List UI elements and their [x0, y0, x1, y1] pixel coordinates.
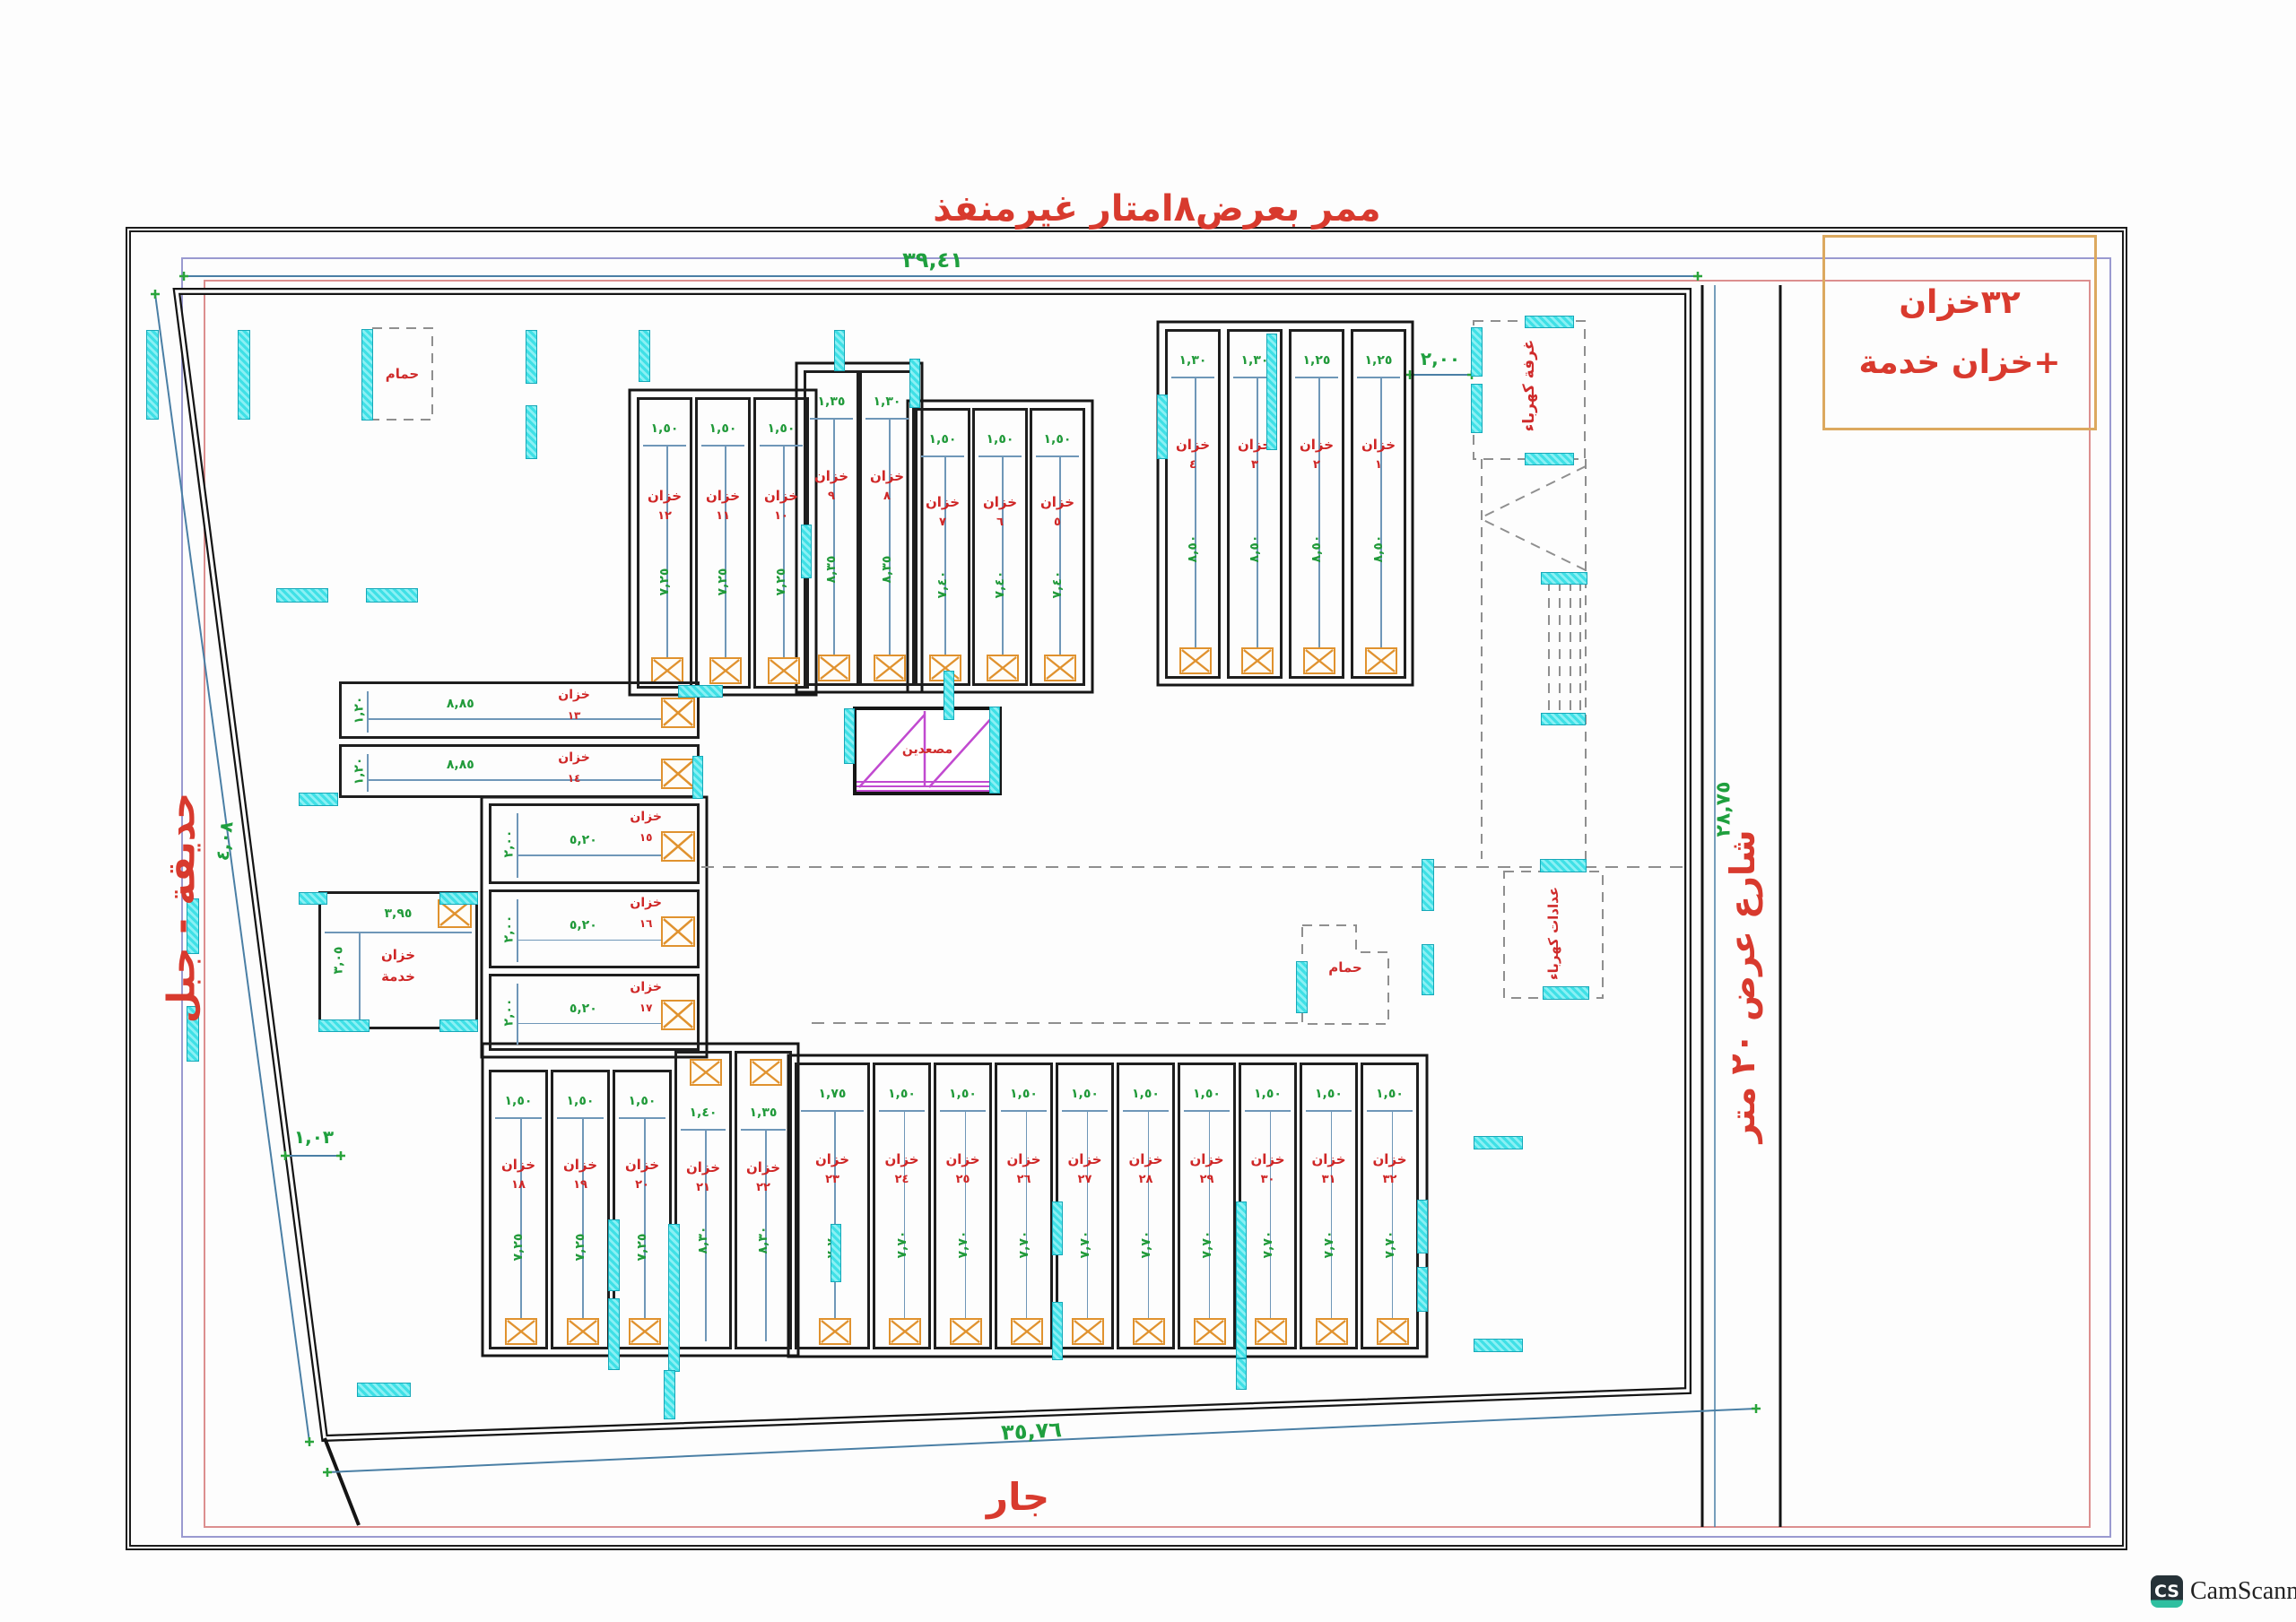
unit-width-dim: ١,٥٠ [1032, 432, 1083, 447]
unit-height-dim: ٧,٤٠ [993, 571, 1007, 599]
unit-width-dim: ٨,٨٥ [406, 697, 514, 711]
measure-line [1087, 1110, 1089, 1341]
measure-line [1209, 1110, 1211, 1341]
column [1525, 453, 1574, 465]
column [1236, 1358, 1247, 1390]
unit-21: ١,٤٠خزان٢١٨,٣٠ [674, 1051, 732, 1349]
unit-number: ١٢ [639, 509, 690, 523]
door-icon [1316, 1318, 1348, 1345]
column [1422, 859, 1434, 911]
unit-25: ١,٥٠خزان٢٥٧,٧٠ [934, 1063, 992, 1349]
unit-number: ١٩ [553, 1178, 607, 1192]
unit-26: ١,٥٠خزان٢٦٧,٧٠ [995, 1063, 1053, 1349]
unit-number: ١٠ [756, 509, 806, 523]
unit-1: ١,٢٥خزان١٨,٥٠ [1351, 329, 1406, 679]
unit-width-dim: ١,٤٠ [677, 1106, 729, 1120]
unit-name: خزان [875, 1151, 928, 1167]
unit-18: ١,٥٠خزان١٨٧,٢٥ [489, 1070, 548, 1349]
unit-width-dim: ١,٥٠ [1302, 1087, 1355, 1101]
measure-line [783, 445, 785, 681]
dim-top: ٣٩,٤١ [861, 247, 1004, 273]
unit-height-dim: ٧,٤٠ [1050, 571, 1065, 599]
column [1157, 395, 1168, 459]
measure-line [1318, 377, 1320, 671]
unit-19: ١,٥٠خزان١٩٧,٢٥ [551, 1070, 610, 1349]
tank-count-box: ٣٢خزان +خزان خدمة [1822, 235, 2097, 430]
unit-height-dim: ٧,٢٥ [657, 568, 672, 596]
unit-height-dim: ٧,٧٠ [1200, 1231, 1214, 1259]
column [639, 330, 650, 382]
unit-height-dim: ١,٢٠ [352, 697, 366, 724]
door-icon [661, 759, 695, 789]
door-icon [505, 1318, 537, 1345]
unit-name: خزان [553, 1157, 607, 1173]
column [366, 588, 418, 603]
measure-line [760, 445, 803, 447]
unit-number: ٢٥ [936, 1173, 989, 1186]
measure-line [1331, 1110, 1333, 1341]
unit-height-dim: ٨,٣٠ [696, 1226, 710, 1253]
unit-height-dim: ٨,٣٠ [756, 1226, 770, 1253]
camscanner-logo-icon: CS [2151, 1575, 2183, 1608]
measure-line [1001, 1110, 1047, 1112]
unit-number: ١١ [698, 509, 748, 523]
unit-number: ٢٤ [875, 1173, 928, 1186]
unit-width-dim: ١,٥٠ [1363, 1087, 1416, 1101]
column [1541, 713, 1586, 725]
column [1417, 1200, 1428, 1253]
camscanner-watermark: CS CamScanner [2151, 1575, 2296, 1608]
unit-5: ١,٥٠خزان٥٧,٤٠ [1030, 408, 1085, 686]
measure-line [643, 445, 686, 447]
meters-label: عدادات كهرباء [1545, 871, 1561, 996]
column [1474, 1136, 1523, 1149]
unit-height-dim: ٨,٣٥ [880, 556, 894, 584]
column [1422, 944, 1434, 995]
door-icon [818, 655, 850, 681]
dim-street: ٢٨,٧٥ [1713, 756, 1735, 863]
unit-height-dim: ٧,٤٠ [935, 571, 950, 599]
unit-30: ١,٥٠خزان٣٠٧,٧٠ [1239, 1063, 1297, 1349]
measure-line [517, 1023, 665, 1025]
door-icon [950, 1318, 982, 1345]
measure-line [701, 445, 744, 447]
neighbor-label: جار [928, 1475, 1108, 1519]
column [834, 330, 845, 371]
unit-width-dim: ١,٣٠ [1168, 353, 1218, 368]
unit-height-dim: ٧,٢٥ [573, 1234, 587, 1262]
unit-height-dim: ٧,٢٥ [511, 1234, 526, 1262]
unit-name: خزان [797, 1151, 867, 1167]
unit-7: ١,٥٠خزان٧٧,٤٠ [915, 408, 970, 686]
unit-name: خزان [1032, 494, 1083, 510]
column [608, 1219, 620, 1291]
measure-line [1245, 1110, 1291, 1112]
unit-height-dim: ٨,٥٠ [1248, 535, 1262, 563]
measure-line [889, 418, 891, 678]
column [276, 588, 328, 603]
measure-line [833, 418, 835, 678]
unit-4: ١,٣٠خزان٤٨,٥٠ [1165, 329, 1221, 679]
unit-width-dim: ١,٥٠ [639, 421, 690, 436]
unit-width-dim: ١,٥٠ [918, 432, 968, 447]
unit-width-dim: ١,٧٥ [797, 1087, 867, 1101]
column [1541, 572, 1587, 585]
measure-line [367, 779, 665, 781]
unit-name: خزان [1363, 1151, 1416, 1167]
door-icon [1072, 1318, 1104, 1345]
unit-number: ٣١ [1302, 1173, 1355, 1186]
unit-name: خزان [491, 1157, 545, 1173]
unit-name: خزان [1119, 1151, 1172, 1167]
column [1471, 384, 1483, 433]
measure-line [681, 1129, 726, 1131]
door-icon [661, 916, 695, 947]
unit-name: خزان [529, 688, 619, 702]
unit-11: ١,٥٠خزان١١٧,٢٥ [695, 397, 751, 689]
door-icon [987, 655, 1019, 681]
dim-west-lower: ١,٠٣ [269, 1126, 359, 1148]
unit-number: ١٣ [529, 709, 619, 722]
measure-line [517, 813, 518, 878]
door-icon [819, 1318, 851, 1345]
unit-height-dim: ٧,٢٥ [635, 1234, 649, 1262]
measure-line [1195, 377, 1196, 671]
column [801, 525, 812, 578]
column [664, 1370, 675, 1419]
measure-line [325, 932, 472, 933]
column [526, 330, 537, 384]
unit-name: خزان [737, 1159, 789, 1175]
door-icon [889, 1318, 921, 1345]
unit-15: ٥,٢٠خزان١٥٢,٠٠ [489, 803, 700, 884]
column [299, 892, 327, 905]
unit-name: خزان [529, 750, 619, 765]
unit-height-dim: ٨,٥٠ [1309, 535, 1324, 563]
unit-height-dim: ٧,٧٠ [1078, 1231, 1092, 1259]
measure-line [810, 418, 853, 420]
door-icon [661, 831, 695, 862]
dim-electric-gap: ٢,٠٠ [1396, 348, 1485, 369]
unit-31: ١,٥٠خزان٣١٧,٧٠ [1300, 1063, 1358, 1349]
door-icon [768, 657, 800, 684]
door-icon [651, 657, 683, 684]
unit-number: ١٤ [529, 772, 619, 785]
ramp-arrow [1480, 466, 1586, 570]
unit-height-dim: ٧,٧٠ [956, 1231, 970, 1259]
measure-line [741, 1129, 786, 1131]
unit-name: خزان [677, 1159, 729, 1175]
measure-line [879, 1110, 925, 1112]
unit-number: ٢٢ [737, 1181, 789, 1194]
unit-s: ٣,٩٥خزانخدمة٣,٠٥ [318, 891, 478, 1029]
unit-width-dim: ١,٥٠ [491, 1094, 545, 1108]
unit-number: ٢٣ [797, 1173, 867, 1186]
door-icon [1194, 1318, 1226, 1345]
unit-number: ٢٠ [615, 1178, 669, 1192]
door-icon [629, 1318, 661, 1345]
unit-27: ١,٥٠خزان٢٧٧,٧٠ [1056, 1063, 1114, 1349]
column [1474, 1339, 1523, 1352]
unit-name: خزان [997, 1151, 1050, 1167]
unit-height-dim: ١,٢٠ [352, 758, 366, 785]
unit-height-dim: ٧,٧٠ [895, 1231, 909, 1259]
unit-6: ١,٥٠خزان٦٧,٤٠ [972, 408, 1028, 686]
unit-width-dim: ٨,٨٥ [406, 758, 514, 772]
unit-width-dim: ١,٥٠ [756, 421, 806, 436]
column [668, 1224, 680, 1372]
measure-line [1306, 1110, 1352, 1112]
column [692, 756, 703, 799]
measure-line [944, 455, 946, 678]
unit-2: ١,٢٥خزان٢٨,٥٠ [1289, 329, 1344, 679]
unit-width-dim: ١,٥٠ [1180, 1087, 1233, 1101]
unit-width-dim: ١,٥٠ [875, 1087, 928, 1101]
door-icon [750, 1059, 782, 1086]
unit-height-dim: ٧,٧٠ [1383, 1231, 1397, 1259]
unit-name: خزان [601, 810, 691, 824]
measure-line [904, 1110, 906, 1341]
door-icon [567, 1318, 599, 1345]
measure-line [517, 984, 518, 1045]
column [1417, 1267, 1428, 1312]
unit-height-dim: ٨,٥٠ [1186, 535, 1200, 563]
unit-16: ٥,٢٠خزان١٦٢,٠٠ [489, 889, 700, 968]
bathroom-mid-label: حمام [1302, 959, 1388, 976]
unit-22: ١,٣٥خزان٢٢٨,٣٠ [735, 1051, 792, 1349]
measure-line [367, 691, 369, 733]
unit-name: خزان [1241, 1151, 1294, 1167]
unit-name: خزان [1180, 1151, 1233, 1167]
column [944, 671, 954, 720]
unit-number: ٢٨ [1119, 1173, 1172, 1186]
measure-line [582, 1117, 584, 1341]
unit-height-dim: ٧,٧٠ [1139, 1231, 1153, 1259]
measure-line [1062, 1110, 1108, 1112]
unit-8: ١,٣٠خزان٨٨,٣٥ [859, 370, 915, 686]
garden-label: حديقة - جبل [160, 720, 204, 1097]
column [1052, 1201, 1063, 1255]
unit-height-dim: ٧,٢٥ [716, 568, 730, 596]
camscanner-text: CamScanner [2190, 1577, 2296, 1606]
measure-line [1148, 1110, 1150, 1341]
door-icon [1179, 647, 1212, 674]
column [357, 1383, 411, 1397]
unit-width-dim: ١,٥٠ [975, 432, 1025, 447]
unit-32: ١,٥٠خزان٣٢٧,٧٠ [1361, 1063, 1419, 1349]
corridor-label: ممر بعرض٨امتار غيرمنفذ [798, 188, 1516, 230]
unit-height-dim: ٣,٠٥ [331, 947, 345, 975]
unit-width-dim: ١,٢٥ [1291, 353, 1342, 368]
elevators-label: مصعدين [855, 742, 1000, 757]
unit-name: خزان [698, 488, 748, 504]
measure-line [367, 754, 369, 792]
unit-13: ٨,٨٥خزان١٣١,٢٠ [339, 681, 700, 739]
measure-line [940, 1110, 986, 1112]
door-icon [1011, 1318, 1043, 1345]
column [844, 708, 855, 764]
measure-line [517, 940, 665, 941]
unit-width-dim: ١,٣٠ [862, 395, 912, 409]
unit-name: خزان [601, 896, 691, 910]
unit-height-dim: ٨,٥٠ [1371, 535, 1386, 563]
unit-width-dim: ١,٣٥ [806, 395, 857, 409]
unit-name: خزان [615, 1157, 669, 1173]
unit-number: ٢ [1291, 458, 1342, 472]
unit-width-dim: ١,٥٠ [553, 1094, 607, 1108]
tank-count-line2: +خزان خدمة [1859, 344, 2061, 381]
measure-line [1123, 1110, 1169, 1112]
unit-9: ١,٣٥خزان٩٨,٣٥ [804, 370, 859, 686]
unit-number: ٦ [975, 516, 1025, 529]
column [1236, 1201, 1247, 1358]
unit-17: ٥,٢٠خزان١٧٢,٠٠ [489, 974, 700, 1051]
column [238, 330, 250, 420]
unit-number: ٧ [918, 516, 968, 529]
column [299, 793, 338, 806]
column [439, 1019, 478, 1032]
measure-line [1270, 1110, 1272, 1341]
column [318, 1019, 370, 1032]
door-icon [661, 1000, 695, 1030]
door-icon [1377, 1318, 1409, 1345]
unit-height-dim: ٧,٧٠ [1322, 1231, 1336, 1259]
door-icon [690, 1059, 722, 1086]
measure-line [367, 718, 665, 720]
measure-line [1392, 1110, 1394, 1341]
measure-line [725, 445, 726, 681]
unit-width-dim: ١,٥٠ [1119, 1087, 1172, 1101]
column [526, 405, 537, 459]
unit-number: ٣٢ [1363, 1173, 1416, 1186]
unit-width-dim: ١,٥٠ [936, 1087, 989, 1101]
unit-height-dim: ٢,٠٠ [501, 830, 516, 858]
unit-width-dim: ١,٥٠ [997, 1087, 1050, 1101]
unit-number: ٢٧ [1058, 1173, 1111, 1186]
unit-name: خزان [1058, 1151, 1111, 1167]
unit-height-dim: ٨,٣٥ [824, 556, 839, 584]
measure-line [1059, 455, 1061, 678]
measure-line [978, 455, 1022, 457]
unit-name: خزان [862, 468, 912, 484]
unit-name: خزان [1302, 1151, 1355, 1167]
unit-width-dim: ١,٥٠ [1241, 1087, 1294, 1101]
column [1052, 1302, 1063, 1360]
unit-height-dim: ٢,٠٠ [501, 915, 516, 943]
unit-number: ١ [1353, 458, 1404, 472]
measure-line [520, 1117, 522, 1341]
measure-line [1380, 377, 1382, 671]
column [678, 685, 723, 698]
unit-height-dim: ٧,٧٠ [1017, 1231, 1031, 1259]
unit-number: ٩ [806, 490, 857, 503]
unit-name: خزان [756, 488, 806, 504]
unit-name: خزان [936, 1151, 989, 1167]
measure-line [644, 1117, 646, 1341]
measure-line [1171, 377, 1214, 378]
unit-width-dim: ١,٥٠ [615, 1094, 669, 1108]
measure-line [517, 899, 518, 962]
door-icon [661, 698, 695, 728]
column [439, 892, 478, 905]
measure-line [1257, 377, 1258, 671]
unit-number: ٨ [862, 490, 912, 503]
measure-line [1367, 1110, 1413, 1112]
unit-14: ٨,٨٥خزان١٤١,٢٠ [339, 744, 700, 798]
unit-24: ١,٥٠خزان٢٤٧,٧٠ [873, 1063, 931, 1349]
measure-line [1295, 377, 1338, 378]
measure-line [865, 418, 909, 420]
bathroom-top-label: حمام [372, 328, 432, 420]
unit-name: خزان [806, 468, 857, 484]
unit-width-dim: ١,٥٠ [698, 421, 748, 436]
unit-width-dim: ١,٥٠ [1058, 1087, 1111, 1101]
measure-line [495, 1117, 542, 1119]
door-icon [1303, 647, 1335, 674]
door-icon [874, 655, 906, 681]
unit-number: ٥ [1032, 516, 1083, 529]
measure-line [1002, 455, 1004, 678]
measure-line [1357, 377, 1400, 378]
unit-20: ١,٥٠خزان٢٠٧,٢٥ [613, 1070, 672, 1349]
stairs [1549, 581, 1580, 713]
door-icon [1241, 647, 1274, 674]
door-icon [1044, 655, 1076, 681]
scanned-floor-plan-page: ١,٢٥خزان١٨,٥٠١,٢٥خزان٢٨,٥٠١,٣٠خزان٣٨,٥٠١… [0, 0, 2296, 1622]
column [909, 359, 920, 408]
unit-number: ٢٦ [997, 1173, 1050, 1186]
measure-line [1184, 1110, 1230, 1112]
unit-name: خزان [918, 494, 968, 510]
unit-height-dim: ٧,٢٥ [774, 568, 788, 596]
unit-23: ١,٧٥خزان٢٣٧,٧٠ [795, 1063, 870, 1349]
door-icon [709, 657, 742, 684]
measure-line [517, 854, 665, 856]
unit-name: خزان [1353, 437, 1404, 453]
unit-number: ٤ [1168, 458, 1218, 472]
measure-line [666, 445, 668, 681]
measure-line [1026, 1110, 1028, 1341]
door-icon [1365, 647, 1397, 674]
unit-name: خزان [1168, 437, 1218, 453]
unit-name: خزان [639, 488, 690, 504]
unit-12: ١,٥٠خزان١٢٧,٢٥ [637, 397, 692, 689]
column [146, 330, 159, 420]
unit-width-dim: ١,٣٥ [737, 1106, 789, 1120]
unit-number: ٢٩ [1180, 1173, 1233, 1186]
unit-number: ٣ [1230, 458, 1280, 472]
measure-line [557, 1117, 604, 1119]
unit-height-dim: ٢,٠٠ [501, 999, 516, 1027]
column [831, 1224, 841, 1282]
electric-room-label: غرفة كهرباء [1520, 332, 1538, 439]
unit-28: ١,٥٠خزان٢٨٧,٧٠ [1117, 1063, 1175, 1349]
measure-line [801, 1110, 864, 1112]
unit-number: ٣٠ [1241, 1173, 1294, 1186]
unit-height-dim: ٧,٧٠ [1261, 1231, 1275, 1259]
measure-line [965, 1110, 967, 1341]
unit-name: خزان [601, 980, 691, 994]
measure-line [921, 455, 964, 457]
measure-line [619, 1117, 665, 1119]
unit-29: ١,٥٠خزان٢٩٧,٧٠ [1178, 1063, 1236, 1349]
tank-count-line1: ٣٢خزان [1899, 284, 2020, 321]
unit-name: خزان [975, 494, 1025, 510]
unit-name: خزان [1291, 437, 1342, 453]
unit-number: ١٨ [491, 1178, 545, 1192]
door-icon [1133, 1318, 1165, 1345]
unit-number: ٢١ [677, 1181, 729, 1194]
